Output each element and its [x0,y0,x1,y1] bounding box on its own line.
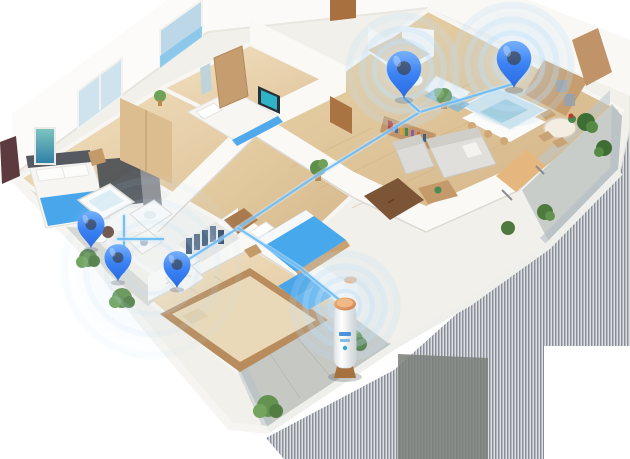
wardrobe-bedroom-2 [214,46,248,108]
wall-art [35,128,55,164]
shadow-solid-patch [398,354,488,459]
hub-label-mark [339,332,351,336]
floorplan-canvas [0,0,630,459]
plant-icon [501,221,515,235]
apartment-illustration [0,0,630,459]
entry-door [330,0,356,21]
mirror [200,63,212,95]
signal-ripple-icon [55,171,248,364]
